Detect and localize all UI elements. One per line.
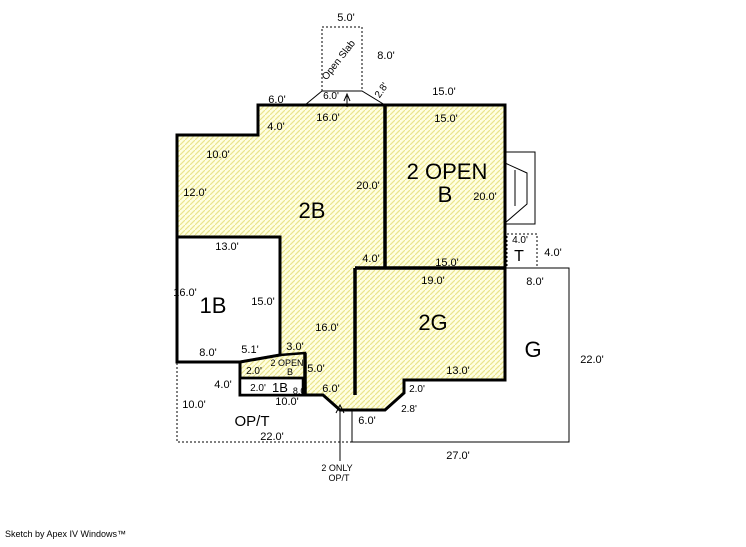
dim-label: 27.0' [446,450,470,462]
dim-label: 8.0' [377,50,394,62]
dim-label: 4.0' [362,253,379,265]
dim-label: 6.0' [268,94,285,106]
area-label-1b-small: 1B [272,380,288,395]
dim-label: 22.0' [260,431,284,443]
dim-label: 20.0' [473,191,497,203]
area-label-1b: 1B [200,293,227,318]
dim-label: 8.0' [526,276,543,288]
area-label-2g: 2G [418,310,447,335]
dim-label: 10.0' [275,396,299,408]
area-label-2openb-small: B [287,367,293,377]
dim-label: 16.0' [315,322,339,334]
area-label-opt: OP/T [234,413,269,430]
dim-label: 2.0' [409,384,425,395]
dim-label: 4.0' [214,379,231,391]
dim-label: 6.0' [323,91,339,102]
dim-label: 19.0' [421,275,445,287]
dim-label: 6.0' [322,383,339,395]
credit-text: Sketch by Apex IV Windows™ [5,529,126,539]
dim-label: 4.0' [267,121,284,133]
dim-label: 2.0' [250,383,266,394]
dim-label: 15.0' [435,257,459,269]
dim-label: 13.0' [215,241,239,253]
opt-note-arrow-icon [336,405,344,461]
area-label-2openb: 2 OPEN [407,159,488,184]
dim-label: 4.0' [544,247,561,259]
note-2-only-opt: OP/T [328,473,350,483]
area-label-t: T [514,248,524,265]
dim-label: 2.8' [373,81,391,100]
open-slab-label: Open Slab [320,38,358,82]
dim-label: 2.0' [246,366,262,377]
dim-label: 10.0' [206,149,230,161]
area-label-2b: 2B [299,198,326,223]
dim-label: 4.0' [512,235,528,246]
dim-label: 5.0' [307,363,324,375]
area-label-2openb: B [438,182,453,207]
dim-label: 12.0' [183,187,207,199]
floorplan-sketch: 5.0'8.0'Open Slab6.0'6.0'2.8'15.0'16.0'1… [0,0,746,547]
dim-label: 5.1' [241,344,258,356]
dim-label: 22.0' [580,354,604,366]
fireplace-icon [505,152,535,224]
dim-label: 15.0' [434,113,458,125]
dim-label: 3.0' [286,341,303,353]
dim-label: 15.0' [432,86,456,98]
note-2-only-opt: 2 ONLY [321,463,352,473]
dim-label: 16.0' [173,287,197,299]
dim-label: 2.8' [401,404,417,415]
sketch-canvas: 5.0'8.0'Open Slab6.0'6.0'2.8'15.0'16.0'1… [0,0,746,547]
dim-label: 6.0' [358,415,375,427]
area-label-g: G [524,337,541,362]
dim-label: 20.0' [356,180,380,192]
dim-label: 13.0' [446,365,470,377]
dim-label: 8.0' [293,386,308,396]
dim-label: 16.0' [316,112,340,124]
dim-label: 10.0' [182,399,206,411]
dim-label: 15.0' [251,296,275,308]
dim-label: 8.0' [199,347,216,359]
dim-label: 5.0' [337,12,354,24]
